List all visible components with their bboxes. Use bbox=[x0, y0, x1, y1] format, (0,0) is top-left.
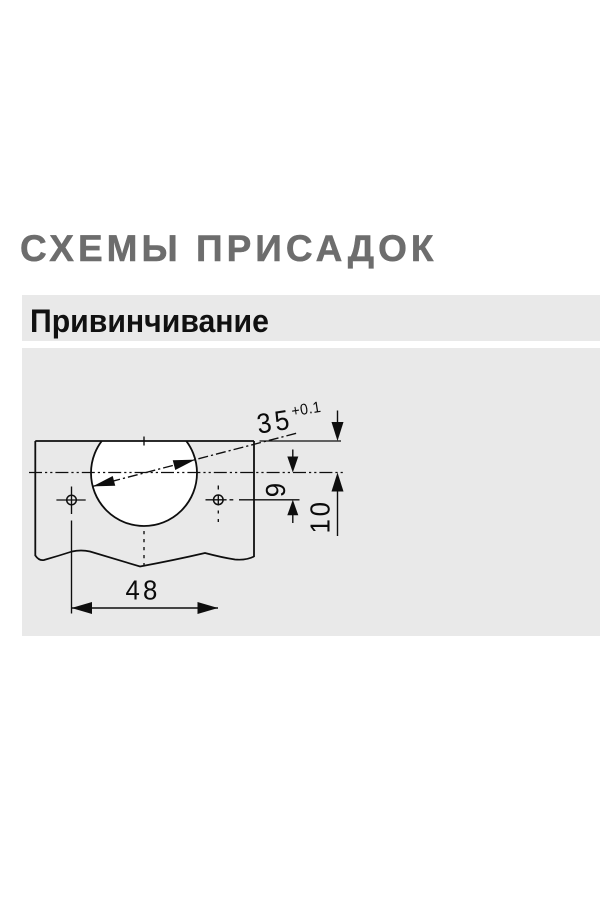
svg-text:10: 10 bbox=[305, 499, 336, 533]
svg-text:48: 48 bbox=[126, 575, 161, 606]
svg-text:9: 9 bbox=[260, 483, 291, 497]
svg-text:35+0.1: 35+0.1 bbox=[255, 399, 325, 440]
